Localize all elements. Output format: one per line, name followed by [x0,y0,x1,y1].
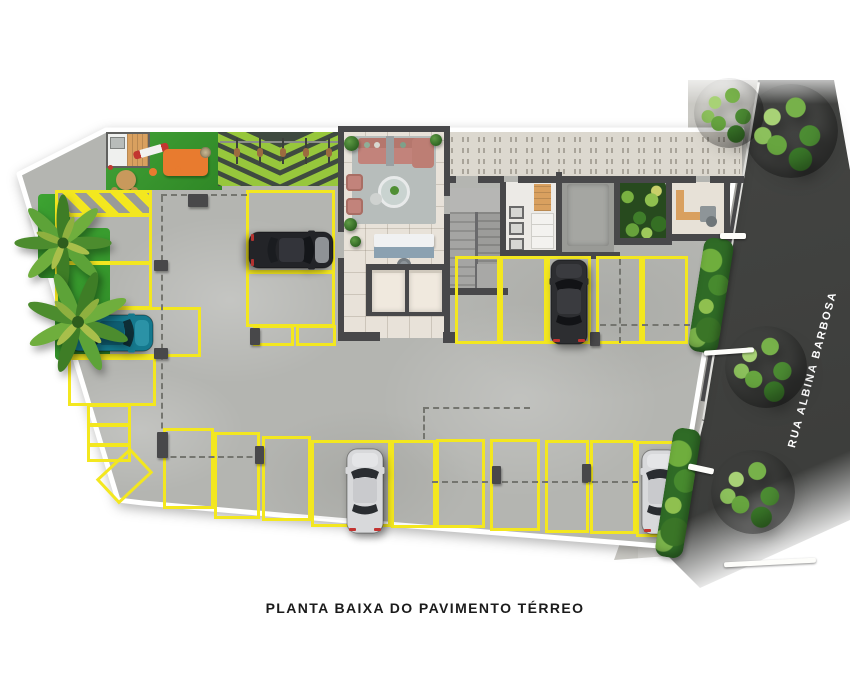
sidewalk-bench [720,233,746,239]
wall [500,182,506,258]
street-tree [725,326,807,408]
pillow [400,142,406,148]
column [250,328,260,345]
moto-space [87,424,131,446]
garden-sink [110,137,125,149]
wall [614,238,672,245]
elevator-cab [409,270,442,312]
paver-pattern [446,137,740,142]
lobby-plant [344,136,359,151]
aisle-dashed-line [423,407,530,409]
bicycle-icon [326,148,332,157]
column [157,432,168,458]
bicycle-icon [234,148,240,157]
stair-landing [450,188,502,212]
silver-car [345,447,385,535]
technical-room-slab [567,184,609,246]
column [582,464,591,482]
aisle-dashed-line [161,456,262,458]
play-ball [175,166,181,172]
flower-pot [108,165,113,170]
paver-pattern [446,159,740,164]
parking-space [214,432,260,519]
wall [338,258,344,340]
lobby-plant [350,236,361,247]
street-tree [744,84,838,178]
column [154,260,168,271]
pillow [364,142,370,148]
play-ball [149,168,157,176]
aisle-dashed-line [161,196,163,458]
parking-space [436,439,485,528]
palm-tree [18,262,138,382]
parking-space [163,428,214,509]
parking-space [642,256,688,344]
armchair [346,198,363,215]
wall [556,172,562,258]
parking-space [455,256,500,344]
bicycle-icon [303,148,309,157]
lobby-plant [430,134,442,146]
parking-space [391,440,436,528]
column [255,446,264,464]
aisle-dashed-line [423,407,425,439]
wall [338,126,344,232]
aisle-dashed-line [600,324,690,326]
parking-space [246,271,335,327]
reception-desk [374,234,434,247]
side-table [370,193,382,205]
concierge-chair [706,216,717,227]
aisle-dashed-line [432,481,638,483]
concierge-desk [676,212,700,220]
black-car [247,230,335,270]
elevator-cab [372,270,405,312]
sofa-console [386,136,394,166]
parking-space [545,440,589,533]
wood-shelf [534,184,551,211]
dark-suv [549,258,589,346]
street-tree [711,450,795,534]
space-divider-dashed [619,259,621,343]
parking-space [500,256,547,344]
pillow [374,142,380,148]
meter-box [509,222,524,235]
wall [338,332,380,341]
paver-pattern [446,169,740,174]
wall [338,126,450,132]
wall [444,176,456,183]
plan-title: PLANTA BAIXA DO PAVIMENTO TÉRREO [0,600,850,616]
column [154,348,168,359]
wall [444,214,450,334]
parking-space [262,436,311,521]
paver-pattern [446,148,740,153]
parking-space [590,440,636,534]
meter-box [509,206,524,219]
lobby-plant [344,218,357,231]
wall [666,176,672,240]
column [590,332,600,346]
reception-desk-front [374,247,434,258]
wall [444,126,450,196]
parking-space-small [296,325,336,346]
moto-space [87,404,131,426]
cabinets [531,213,554,249]
wall [614,176,620,244]
bicycle-icon [257,148,263,157]
table-plant [390,186,399,195]
tree-stump-seat [200,147,211,158]
parking-space [490,439,540,531]
bike-rack-rail [220,141,340,143]
column [492,466,501,484]
bicycle-icon [280,148,286,157]
planter-bed [618,182,666,242]
column [188,194,208,207]
armchair [346,174,363,191]
floor-plan-illustration: RUA ALBINA BARBOSA [0,0,850,680]
